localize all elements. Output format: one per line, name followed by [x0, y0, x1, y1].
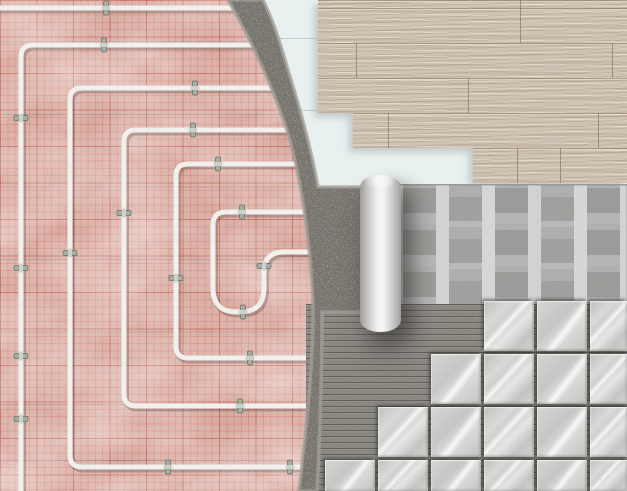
marble-tile: [537, 354, 587, 404]
marble-tile: [378, 460, 428, 491]
marble-tile: [484, 407, 534, 457]
marble-tile: [590, 460, 627, 491]
marble-tile: [431, 407, 481, 457]
membrane-roll-cylinder: [360, 175, 401, 332]
marble-tile: [590, 354, 627, 404]
marble-tile: [590, 407, 627, 457]
marble-tile: [537, 407, 587, 457]
marble-tile: [484, 460, 534, 491]
marble-tile: [378, 407, 428, 457]
tile-floor-area: [0, 0, 627, 491]
marble-tile: [484, 301, 534, 351]
marble-tile: [325, 460, 375, 491]
marble-tile: [537, 301, 587, 351]
marble-tile: [431, 354, 481, 404]
marble-tile: [431, 460, 481, 491]
marble-tile: [537, 460, 587, 491]
floor-layers-illustration: [0, 0, 627, 491]
marble-tile: [590, 301, 627, 351]
marble-tile: [484, 354, 534, 404]
